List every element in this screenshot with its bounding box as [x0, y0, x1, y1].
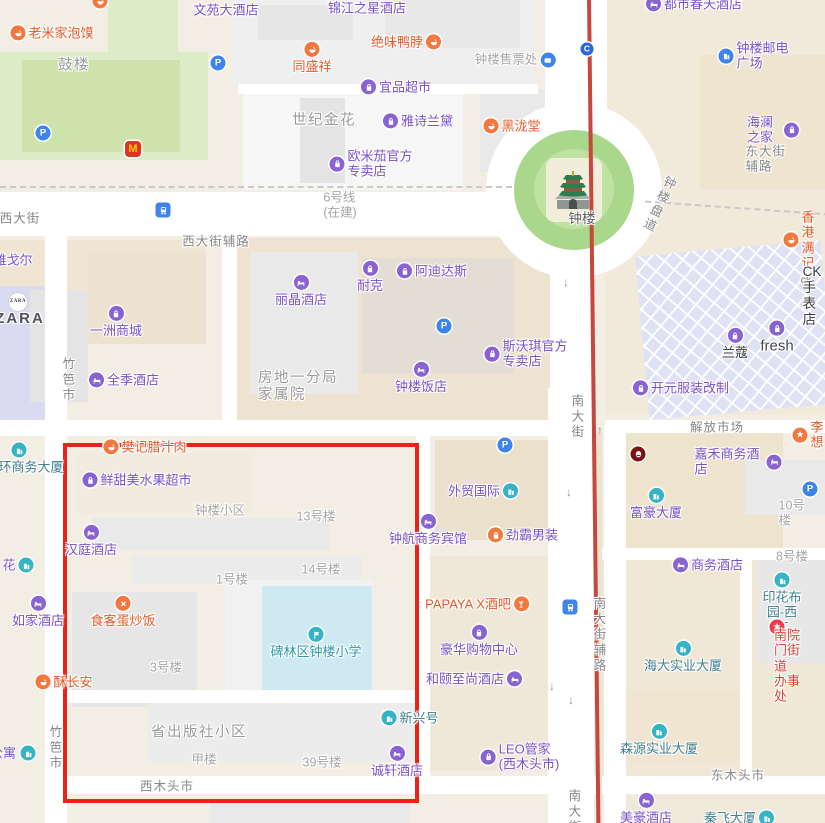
map-poi[interactable]: 森源实业大厦	[620, 724, 698, 756]
hotel-icon	[507, 671, 522, 686]
poi-label: 花	[2, 557, 15, 572]
poi-label: 竹笆市	[60, 357, 75, 404]
map-poi[interactable]: 老米家泡馍	[10, 25, 93, 40]
map-poi[interactable]: 绝味鸭脖	[371, 34, 441, 49]
map-poi[interactable]	[563, 600, 578, 615]
poi-label: 全季酒店	[107, 372, 159, 387]
zara-logo: ZARA	[9, 293, 27, 311]
building-icon	[719, 49, 734, 64]
poi-label: 新兴号	[399, 710, 438, 725]
map-poi[interactable]: 钟航商务宾馆	[389, 514, 467, 546]
poi-label: 鼓楼	[58, 57, 90, 74]
map-poi: 西大街辅路	[182, 235, 250, 250]
map-poi[interactable]: 耐克	[357, 261, 383, 293]
map-poi[interactable]: 鲜甜美水果超市	[82, 472, 191, 487]
road	[0, 420, 552, 436]
poi-label: 14号楼	[302, 563, 341, 578]
poi-label: 环商务大厦	[0, 459, 64, 474]
map-poi: 世纪金花	[292, 112, 356, 129]
poi-label: 汉庭酒店	[65, 542, 117, 557]
road	[740, 558, 752, 778]
map-poi[interactable]: P	[437, 319, 452, 334]
poi-label: 6号线 (在建)	[323, 190, 356, 220]
hotel-icon	[30, 596, 45, 611]
poi-label: 钟楼售票处	[475, 53, 538, 68]
poi-label: 钟楼	[569, 211, 596, 227]
map-poi[interactable]: 都市春天酒店	[646, 0, 742, 12]
map-block	[108, 0, 178, 58]
map-poi: ↓	[568, 693, 574, 707]
poi-label: 樊记腊汁肉	[121, 439, 186, 454]
map-poi[interactable]	[631, 447, 646, 462]
map-poi[interactable]: 汉庭酒店	[65, 525, 117, 557]
map-block	[210, 800, 410, 823]
hotel-icon	[673, 557, 688, 572]
map-poi[interactable]: 香港满记	[783, 209, 814, 270]
poi-label: 绝味鸭脖	[371, 34, 423, 49]
poi-label: 宜品超市	[379, 79, 431, 94]
map-poi[interactable]: 宜品超市	[361, 79, 431, 94]
map-poi: ↓	[563, 275, 569, 289]
poi-label: 香港满记	[801, 209, 814, 270]
poi-label: 8号楼	[776, 550, 808, 565]
map-poi[interactable]: 斯沃琪官方 专卖店	[484, 339, 567, 370]
hotel-icon	[413, 362, 428, 377]
map-poi: 3号楼	[150, 661, 182, 676]
star-icon: ★	[792, 428, 807, 443]
poi-label: 文苑大酒店	[193, 2, 258, 17]
map-poi[interactable]	[551, 169, 595, 211]
map-poi: 西木头市	[140, 780, 194, 795]
map-poi: 13号楼	[297, 510, 336, 525]
bag-icon	[82, 472, 97, 487]
map-poi[interactable]: 海澜之家	[747, 115, 799, 146]
bag-icon	[784, 123, 799, 138]
map-poi[interactable]: 劲霸男装	[488, 527, 558, 542]
bag-icon	[727, 328, 742, 343]
map-poi[interactable]: 花	[2, 557, 15, 572]
food-icon	[35, 674, 50, 689]
bag-icon	[488, 527, 503, 542]
poi-label: 钟航商务宾馆	[389, 531, 467, 546]
map-poi[interactable]: 兰蔻	[722, 328, 748, 360]
hotel-icon	[638, 793, 653, 808]
poi-label: 1号楼	[216, 573, 248, 588]
poi-label: 富豪大厦	[630, 505, 682, 520]
building-icon	[759, 810, 774, 823]
office-building-icon	[21, 746, 36, 761]
poi-label: 钟楼饭店	[395, 379, 447, 394]
poi-label: 房地一分局 家属院	[258, 370, 338, 404]
poi-label: ↓	[566, 485, 572, 499]
poi-label: 南院门街道 办事处	[774, 628, 808, 705]
metro-station-icon	[563, 600, 578, 615]
poi-label: fresh	[760, 338, 793, 356]
map-poi[interactable]: 外贸国际	[448, 483, 518, 498]
bell-tower-icon	[551, 169, 595, 211]
map-poi[interactable]: ZARA	[0, 310, 45, 328]
map-poi[interactable]: 秦飞大厦	[704, 810, 774, 823]
poi-label: 钟楼邮电广场	[737, 41, 790, 72]
parking-icon: P	[437, 319, 452, 334]
poi-label: 39号楼	[303, 756, 342, 771]
map-poi[interactable]: 南院门街道 办事处	[774, 628, 808, 705]
map-poi: 钟楼售票处	[475, 53, 556, 68]
bag-icon	[481, 750, 496, 765]
map-poi: 10号楼	[779, 498, 810, 528]
map-poi[interactable]: PAPAYA X酒吧	[425, 596, 529, 611]
map-poi[interactable]: 碑林区钟楼小学	[270, 627, 361, 659]
poi-label: 省出版社小区	[151, 724, 247, 741]
poi-label: 南大街辅路	[591, 596, 606, 674]
map-poi[interactable]: 阿迪达斯	[397, 263, 467, 278]
poi-label: 斯沃琪官方 专卖店	[502, 339, 567, 370]
map-poi: 8号楼	[776, 550, 808, 565]
poi-label: ZARA	[0, 310, 45, 328]
poi-label: PAPAYA X酒吧	[425, 596, 511, 611]
building-icon	[651, 724, 666, 739]
map-poi[interactable]	[21, 746, 36, 761]
map-poi[interactable]: 公寓	[0, 745, 16, 760]
poi-label: 豪华购物中心	[440, 642, 518, 657]
bag-icon	[383, 113, 398, 128]
parking-icon: P	[36, 126, 51, 141]
poi-label: 雅诗兰黛	[401, 113, 453, 128]
poi-label: 雅戈尔	[0, 252, 33, 267]
map-poi[interactable]	[156, 203, 171, 218]
parking-icon: P	[211, 56, 226, 71]
map-poi: ↓	[549, 679, 555, 693]
poi-label: 嘉禾商务酒店	[695, 447, 764, 478]
poi-label: 老米家泡馍	[28, 25, 93, 40]
map-poi[interactable]: 黑泷堂	[483, 118, 540, 133]
map-poi: 甲楼	[191, 753, 216, 768]
bag-icon	[633, 380, 648, 395]
poi-label: 东木头市	[711, 769, 765, 784]
map-poi[interactable]: 一洲商城	[90, 306, 142, 338]
poi-label: LEO管家 (西木头市)	[499, 742, 560, 773]
poi-label: 竹笆市	[47, 725, 62, 772]
map-poi[interactable]: P	[803, 482, 818, 497]
poi-label: 商务酒店	[691, 557, 743, 572]
poi-label: 南大街	[569, 394, 584, 441]
poi-label: 和颐至尚酒店	[426, 671, 504, 686]
poi-label: 森源实业大厦	[620, 741, 698, 756]
poi-label: 美豪酒店	[620, 810, 672, 823]
school-icon	[308, 627, 323, 642]
map-poi[interactable]: 和颐至尚酒店	[426, 671, 522, 686]
map-canvas[interactable]: 文苑大酒店锦江之星酒店老米家泡馍鼓楼绝味鸭脖同盛祥钟楼售票处都市春天酒店C钟楼邮…	[0, 0, 825, 823]
hotel-icon	[767, 455, 782, 470]
map-poi[interactable]: 海大实业大厦	[644, 641, 722, 673]
map-poi[interactable]: 富豪大厦	[630, 488, 682, 520]
bag-icon	[484, 347, 499, 362]
poi-label: 劲霸男装	[506, 527, 558, 542]
poi-label: 公寓	[0, 745, 16, 760]
map-poi[interactable]: 锦江之星酒店	[328, 0, 406, 15]
poi-label: 一洲商城	[90, 323, 142, 338]
cocktail-icon	[514, 596, 529, 611]
poi-label: 李想	[810, 420, 823, 451]
poi-label: 西木头市	[140, 780, 194, 795]
building-icon	[503, 483, 518, 498]
poi-label: 3号楼	[150, 661, 182, 676]
map-poi[interactable]: 樊记腊汁肉	[103, 439, 186, 454]
map-poi: 东木头市	[711, 769, 765, 784]
poi-label: CK手表店	[803, 264, 822, 328]
bag-icon	[329, 157, 344, 172]
food-icon	[103, 439, 118, 454]
poi-label: ↑	[597, 423, 603, 437]
poi-label: ↓	[563, 275, 569, 289]
map-poi[interactable]: 同盛祥	[292, 42, 331, 74]
poi-label: 食客蛋炒饭	[90, 613, 155, 628]
building-icon	[775, 573, 790, 588]
food-icon	[483, 118, 498, 133]
map-poi[interactable]	[12, 443, 27, 458]
metro-station-icon	[156, 203, 171, 218]
bag-icon	[361, 79, 376, 94]
map-poi: 南大街	[566, 789, 581, 823]
poi-label: 秦飞大厦	[704, 810, 756, 823]
map-poi[interactable]: 开元服装改制	[633, 380, 729, 395]
poi-label: 丽晶酒店	[275, 292, 327, 307]
bag-icon	[397, 263, 412, 278]
map-poi[interactable]: 欧米茄官方 专卖店	[329, 149, 412, 180]
poi-label: 酥长安	[53, 674, 92, 689]
bag-icon	[108, 306, 123, 321]
office-building-icon	[12, 443, 27, 458]
food-icon	[10, 25, 25, 40]
building-icon	[675, 641, 690, 656]
map-poi: 解放市场	[690, 421, 744, 436]
food-icon	[783, 233, 798, 248]
bag-icon	[769, 321, 784, 336]
poi-label: 世纪金花	[292, 112, 356, 129]
map-poi: 1号楼	[216, 573, 248, 588]
map-poi[interactable]: 环商务大厦	[0, 459, 64, 474]
poi-label: 东大街辅路	[746, 144, 799, 174]
map-poi: 东大街辅路	[746, 144, 799, 174]
poi-label: 10号楼	[779, 498, 810, 528]
map-poi[interactable]: 丽晶酒店	[275, 275, 327, 307]
cross-icon	[115, 596, 130, 611]
food-icon	[93, 0, 108, 9]
map-poi: 省出版社小区	[151, 724, 247, 741]
district-boundary-dashed-line	[0, 186, 512, 188]
map-poi[interactable]: P	[498, 438, 513, 453]
hotel-icon	[420, 514, 435, 529]
map-poi[interactable]: 豪华购物中心	[440, 625, 518, 657]
map-poi: 钟楼	[569, 211, 596, 227]
food-icon	[304, 42, 319, 57]
map-poi[interactable]: 全季酒店	[89, 372, 159, 387]
mcdonalds-icon: M	[125, 141, 141, 157]
map-poi[interactable]: 钟楼邮电广场	[719, 41, 790, 72]
road	[550, 265, 594, 390]
map-poi[interactable]: 酥长安	[35, 674, 92, 689]
poi-label: 开元服装改制	[651, 380, 729, 395]
map-poi[interactable]: 食客蛋炒饭	[90, 596, 155, 628]
map-poi[interactable]: P	[211, 56, 226, 71]
poi-label: 解放市场	[690, 421, 744, 436]
map-poi: 钟楼小区	[195, 504, 245, 519]
map-poi[interactable]: ★李想	[792, 420, 823, 451]
poi-label: ↓	[568, 693, 574, 707]
map-poi[interactable]: 嘉禾商务酒店	[695, 447, 782, 478]
map-poi[interactable]: fresh	[760, 321, 793, 356]
poi-label: 都市春天酒店	[664, 0, 742, 12]
map-poi: 南大街	[569, 394, 584, 441]
map-poi: 南大街辅路	[591, 596, 606, 674]
map-block	[418, 556, 548, 771]
map-poi: 竹笆市	[47, 725, 62, 772]
poi-label: 欧米茄官方 专卖店	[347, 149, 412, 180]
map-poi: 6号线 (在建)	[323, 190, 356, 220]
poi-label: 阿迪达斯	[415, 263, 467, 278]
poi-label: 甲楼	[191, 753, 216, 768]
poi-label: ↓	[549, 679, 555, 693]
poi-label: 碑林区钟楼小学	[270, 644, 361, 659]
office-building-icon	[19, 558, 34, 573]
poi-label: 锦江之星酒店	[328, 0, 406, 15]
map-poi[interactable]: 商务酒店	[673, 557, 743, 572]
hotel-icon	[83, 525, 98, 540]
map-poi[interactable]: 美豪酒店	[620, 793, 672, 823]
poi-label: 海澜之家	[747, 115, 781, 146]
poi-label: 外贸国际	[448, 483, 500, 498]
map-poi: ↑	[597, 423, 603, 437]
poi-label: 海大实业大厦	[644, 658, 722, 673]
map-poi[interactable]: CK手表店	[803, 264, 822, 328]
poi-label: 如家酒店	[12, 613, 64, 628]
building-icon	[381, 710, 396, 725]
map-poi: 房地一分局 家属院	[258, 370, 338, 404]
poi-label: 兰蔻	[722, 345, 748, 360]
metro-line-badge: C	[581, 43, 594, 56]
bag-icon	[362, 261, 377, 276]
food-icon	[426, 34, 441, 49]
map-poi[interactable]: 文苑大酒店	[193, 2, 258, 17]
poi-label: 钟楼小区	[195, 504, 245, 519]
map-poi: 39号楼	[303, 756, 342, 771]
map-poi[interactable]: 诚轩酒店	[371, 746, 423, 778]
poi-label: 南大街	[566, 789, 581, 823]
poi-label: 西大街	[0, 212, 40, 227]
map-poi: 西大街	[0, 212, 40, 227]
road	[222, 236, 237, 422]
map-poi[interactable]: C	[581, 43, 594, 56]
map-poi[interactable]: 钟楼饭店	[395, 362, 447, 394]
map-poi[interactable]: 雅诗兰黛	[383, 113, 453, 128]
map-poi[interactable]	[93, 0, 108, 9]
map-poi: 鼓楼	[58, 57, 90, 74]
map-poi[interactable]	[19, 558, 34, 573]
poi-label: 鲜甜美水果超市	[100, 472, 191, 487]
poi-label: 同盛祥	[292, 59, 331, 74]
bag-icon	[471, 625, 486, 640]
map-poi[interactable]: P	[36, 126, 51, 141]
parking-icon: P	[498, 438, 513, 453]
ticket-icon	[540, 53, 555, 68]
map-poi: 竹笆市	[60, 357, 75, 404]
building-icon	[648, 488, 663, 503]
poi-label: 西大街辅路	[182, 235, 250, 250]
map-poi[interactable]: 新兴号	[381, 710, 438, 725]
map-poi[interactable]: ZARA	[9, 293, 27, 311]
kfc-icon	[631, 447, 646, 462]
hotel-icon	[89, 372, 104, 387]
map-poi[interactable]: 雅戈尔	[0, 252, 33, 267]
hotel-icon	[293, 275, 308, 290]
poi-label: 黑泷堂	[501, 118, 540, 133]
poi-label: 耐克	[357, 278, 383, 293]
road	[604, 425, 626, 823]
hotel-icon	[646, 0, 661, 11]
map-poi: 14号楼	[302, 563, 341, 578]
poi-label: 诚轩酒店	[371, 763, 423, 778]
map-poi: ↓	[566, 485, 572, 499]
poi-label: 13号楼	[297, 510, 336, 525]
hotel-icon	[389, 746, 404, 761]
map-poi[interactable]: M	[125, 141, 141, 157]
road	[0, 192, 552, 236]
map-poi[interactable]: 如家酒店	[12, 596, 64, 628]
parking-icon: P	[803, 482, 818, 497]
map-poi[interactable]: LEO管家 (西木头市)	[481, 742, 560, 773]
